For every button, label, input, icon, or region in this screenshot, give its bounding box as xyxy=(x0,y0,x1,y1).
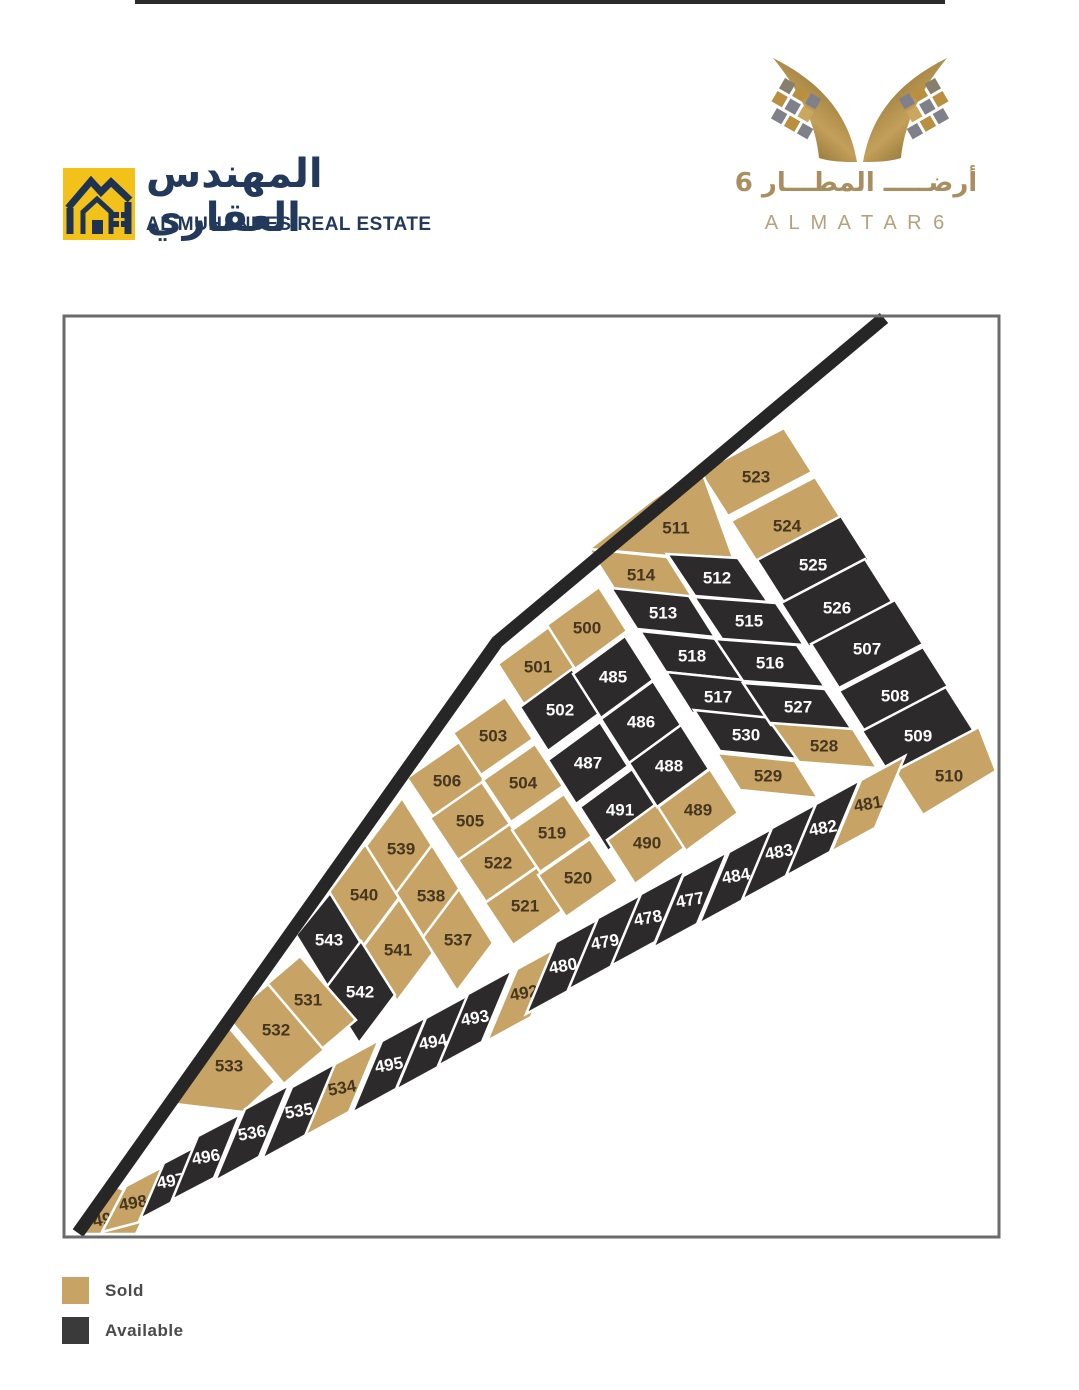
plot-label-533: 533 xyxy=(215,1057,243,1076)
plot-label-542: 542 xyxy=(346,983,374,1002)
plot-label-531: 531 xyxy=(294,991,322,1010)
plot-label-519: 519 xyxy=(538,824,566,843)
plot-label-538: 538 xyxy=(417,887,445,906)
plot-label-517: 517 xyxy=(704,688,732,707)
plot-label-513: 513 xyxy=(649,604,677,623)
plot-label-500: 500 xyxy=(573,619,601,638)
plot-label-515: 515 xyxy=(735,612,763,631)
plot-label-541: 541 xyxy=(384,941,412,960)
plot-label-512: 512 xyxy=(703,569,731,588)
legend-item-available: Available xyxy=(62,1317,184,1344)
plot-label-511: 511 xyxy=(662,519,689,538)
sold-label: Sold xyxy=(105,1281,144,1301)
plot-label-521: 521 xyxy=(511,897,539,916)
plot-label-528: 528 xyxy=(810,737,838,756)
plot-map: 5235245255265075085095105115145135185175… xyxy=(0,0,1079,1390)
plot-label-508: 508 xyxy=(881,687,909,706)
legend-item-sold: Sold xyxy=(62,1277,184,1304)
plot-label-509: 509 xyxy=(904,727,932,746)
plot-label-539: 539 xyxy=(387,840,415,859)
plot-label-527: 527 xyxy=(784,698,812,717)
plot-label-516: 516 xyxy=(756,654,784,673)
plot-label-532: 532 xyxy=(262,1021,290,1040)
plot-label-488: 488 xyxy=(655,757,683,776)
sold-color-swatch xyxy=(62,1277,89,1304)
legend: Sold Available xyxy=(62,1277,184,1357)
plot-label-514: 514 xyxy=(627,566,656,585)
plot-label-507: 507 xyxy=(853,640,881,659)
plot-label-502: 502 xyxy=(546,701,574,720)
plot-label-518: 518 xyxy=(678,647,706,666)
plot-label-510: 510 xyxy=(935,767,963,786)
plot-label-520: 520 xyxy=(564,869,592,888)
plot-label-523: 523 xyxy=(742,468,770,487)
plot-label-524: 524 xyxy=(773,517,802,536)
plot-label-491: 491 xyxy=(606,801,634,820)
plot-label-501: 501 xyxy=(524,658,552,677)
plot-label-525: 525 xyxy=(799,556,827,575)
plot-label-504: 504 xyxy=(509,774,538,793)
plot-label-505: 505 xyxy=(456,812,484,831)
available-color-swatch xyxy=(62,1317,89,1344)
plot-label-543: 543 xyxy=(315,931,343,950)
plot-label-526: 526 xyxy=(823,599,851,618)
plot-label-490: 490 xyxy=(633,834,661,853)
plot-label-487: 487 xyxy=(574,754,602,773)
available-label: Available xyxy=(105,1321,184,1341)
plot-label-503: 503 xyxy=(479,727,507,746)
plot-label-489: 489 xyxy=(684,801,712,820)
plot-label-506: 506 xyxy=(433,772,461,791)
plot-label-486: 486 xyxy=(627,713,655,732)
plot-label-537: 537 xyxy=(444,931,472,950)
plot-label-530: 530 xyxy=(732,726,760,745)
plot-label-522: 522 xyxy=(484,854,512,873)
plot-label-485: 485 xyxy=(599,668,627,687)
plot-label-529: 529 xyxy=(754,767,782,786)
plot-label-540: 540 xyxy=(350,886,378,905)
